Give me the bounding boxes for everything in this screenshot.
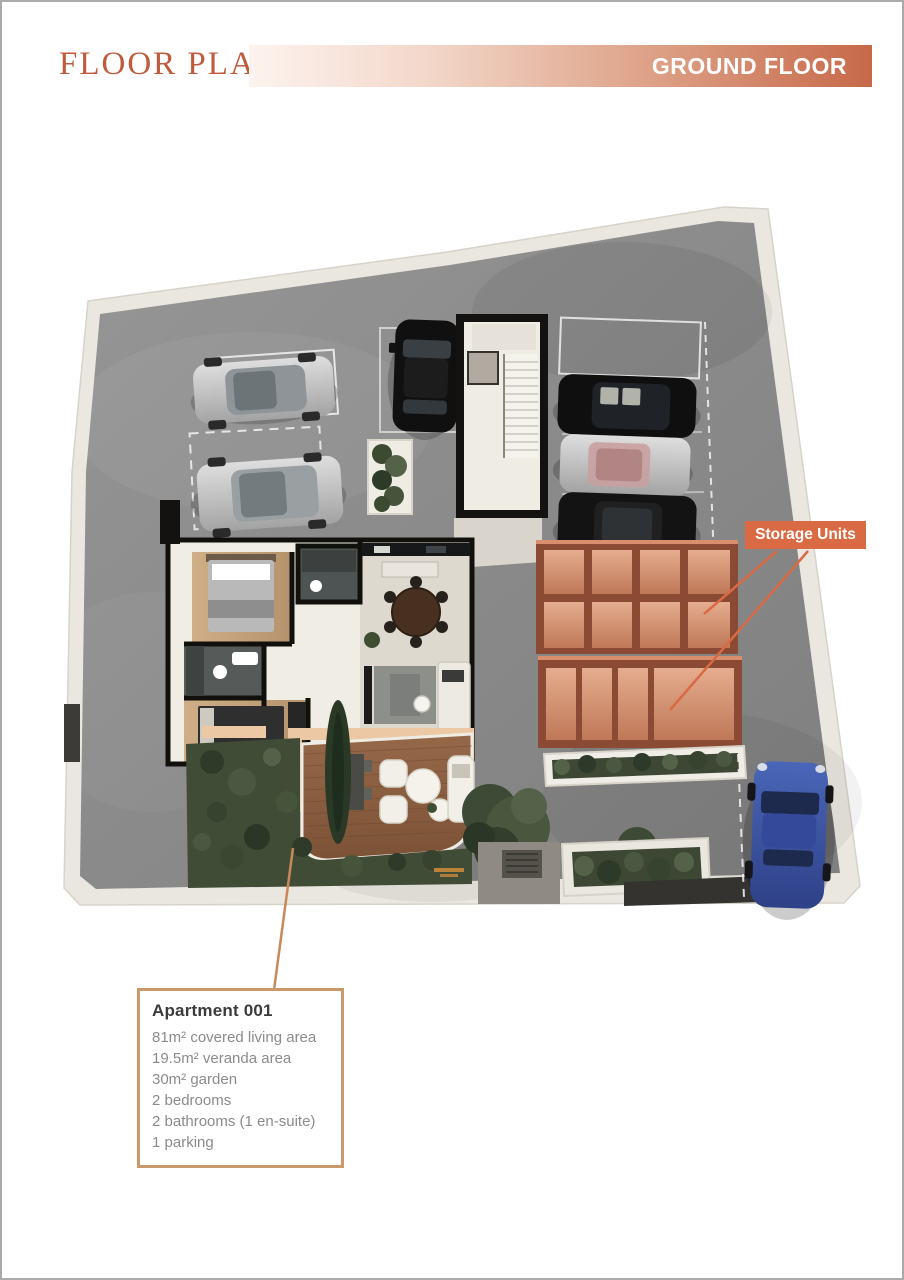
left-wall-stub: [64, 704, 80, 762]
feature-garden: 30m² garden: [152, 1069, 329, 1090]
apartment-info-box: Apartment 001 81m² covered living area 1…: [137, 988, 344, 1168]
feature-bedrooms: 2 bedrooms: [152, 1090, 329, 1111]
brochure-page: FLOOR PLANS GROUND FLOOR Storage Units A…: [0, 0, 904, 1280]
planter-center: [368, 440, 412, 514]
car-silver-coupe: [552, 434, 694, 500]
storage-planter: [544, 746, 746, 786]
storage-units-block-upper: [536, 540, 738, 654]
storage-units-label: Storage Units: [745, 521, 866, 549]
header-gradient-bar: GROUND FLOOR: [249, 45, 872, 87]
storage-units-block-lower: [538, 656, 742, 748]
apartment-title: Apartment 001: [152, 1001, 329, 1021]
floor-badge: GROUND FLOOR: [652, 53, 872, 80]
feature-veranda-area: 19.5m² veranda area: [152, 1048, 329, 1069]
unit-wall-stub: [160, 500, 180, 544]
bottom-path: [478, 842, 560, 904]
car-silver-suv: [187, 449, 348, 540]
car-silver-sedan: [188, 349, 341, 431]
feature-living-area: 81m² covered living area: [152, 1027, 329, 1048]
car-black-hatchback: [386, 319, 466, 442]
stairwell: [454, 314, 548, 567]
feature-bathrooms: 2 bathrooms (1 en-suite): [152, 1111, 329, 1132]
feature-parking: 1 parking: [152, 1132, 329, 1153]
car-black-coupe-1: [552, 373, 702, 442]
